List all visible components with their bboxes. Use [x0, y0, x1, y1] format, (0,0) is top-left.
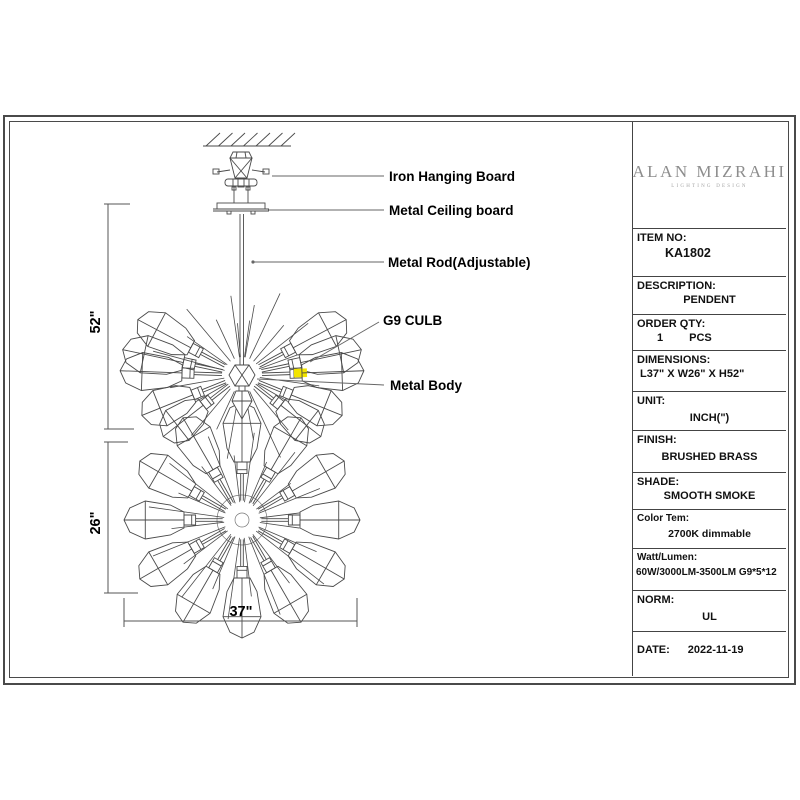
callout-leader-lines — [251, 176, 384, 385]
spec-table: ALAN MIZRAHI LIGHTING DESIGN ITEM NO: KA… — [632, 122, 786, 676]
shade-facet — [274, 427, 307, 446]
shade-socket-line — [283, 388, 287, 397]
hatch-line — [219, 133, 233, 146]
spec-label-dimensions: DIMENSIONS: — [633, 351, 786, 366]
shade-socket — [237, 462, 247, 474]
spike-line — [187, 309, 231, 361]
spec-value-description: PENDENT — [633, 294, 786, 306]
shade-arm — [135, 364, 233, 433]
spike — [245, 433, 255, 502]
shade-arm — [152, 370, 241, 451]
shade-stem — [259, 529, 282, 543]
shade-stem — [258, 531, 281, 545]
shade-stem — [220, 537, 234, 560]
spike — [256, 531, 324, 584]
spike-line — [254, 325, 284, 361]
shade-facet — [163, 405, 203, 436]
shade-stem — [202, 496, 225, 510]
spike-line — [231, 296, 240, 357]
spike — [187, 309, 231, 361]
spec-value-qty-unit: PCS — [689, 332, 712, 344]
shade-facet — [149, 455, 168, 488]
shade-socket-line — [283, 541, 288, 550]
spike-line — [253, 534, 290, 583]
metal-rod-drawing — [240, 214, 244, 365]
spec-value-unit: INCH(") — [633, 412, 786, 424]
spec-label-shade: SHADE: — [633, 473, 786, 488]
spec-label-description: DESCRIPTION: — [633, 277, 786, 292]
spec-row-date: DATE: 2022-11-19 — [633, 631, 786, 676]
plan-hub-circle — [235, 513, 249, 527]
spec-value-qty-number: 1 — [657, 332, 663, 344]
dimension-width: 37" — [229, 604, 252, 620]
spec-label-color-temp: Color Tem: — [633, 510, 786, 524]
hatch-line — [231, 133, 245, 146]
spike — [245, 321, 250, 358]
shade-socket — [288, 515, 300, 525]
shade-facet — [149, 552, 168, 585]
callout-g9-bulb: G9 CULB — [383, 313, 443, 328]
spike-line — [256, 483, 290, 509]
shade-socket — [237, 566, 247, 578]
shade-facet — [274, 594, 307, 613]
shade-stem — [218, 480, 232, 503]
spec-label-unit: UNIT: — [633, 392, 786, 407]
spec-row-color-temp: Color Tem: 2700K dimmable — [633, 509, 786, 548]
metal-ceiling-board-drawing — [213, 203, 269, 214]
hatch-line — [256, 133, 270, 146]
shade-stem — [202, 352, 226, 365]
spike-line — [245, 321, 250, 358]
hatch-line — [244, 133, 258, 146]
metal-body-hub-drawing — [229, 365, 255, 419]
spike — [149, 507, 224, 518]
hatch-line — [281, 133, 295, 146]
spec-label-item-no: ITEM NO: — [633, 229, 786, 244]
shade-facet — [177, 594, 210, 613]
spike — [254, 389, 289, 430]
spec-row-unit: UNIT: INCH(") — [633, 391, 786, 430]
shade-stem — [195, 366, 222, 372]
spec-value-watt-lumen: 60W/3000LM-3500LM G9*5*12 — [633, 567, 786, 578]
shade-socket — [261, 558, 275, 573]
spec-value-norm: UL — [633, 611, 786, 623]
callout-metal-rod: Metal Rod(Adjustable) — [388, 255, 531, 270]
ceiling-hatch — [203, 133, 295, 146]
spike — [245, 305, 254, 357]
dimension-depth: 26" — [88, 511, 104, 534]
callout-iron-hanging-board: Iron Hanging Board — [389, 169, 515, 184]
spec-value-finish: BRUSHED BRASS — [633, 451, 786, 463]
shade-socket-line — [213, 561, 222, 566]
shade-stem — [195, 364, 222, 370]
callout-metal-body: Metal Body — [390, 378, 463, 393]
shade-stem — [253, 480, 267, 503]
spec-value-dimensions: L37" X W26" X H52" — [633, 368, 786, 380]
shade-socket-line — [196, 541, 201, 550]
spec-value-date: 2022-11-19 — [688, 644, 744, 656]
brand-logo: ALAN MIZRAHI LIGHTING DESIGN — [633, 122, 786, 228]
spec-row-dimensions: DIMENSIONS: L37" X W26" X H52" — [633, 350, 786, 391]
spec-label-norm: NORM: — [633, 591, 786, 606]
shade-stem — [202, 531, 225, 545]
spec-label-watt-lumen: Watt/Lumen: — [633, 549, 786, 563]
shade-socket-line — [196, 491, 201, 500]
shade-stem — [210, 384, 228, 398]
shade-socket-line — [283, 491, 288, 500]
spike — [244, 538, 251, 597]
spec-label-order-qty: ORDER QTY: — [633, 315, 786, 330]
spike-line — [153, 527, 225, 556]
spike-line — [216, 320, 234, 359]
spec-row-finish: FINISH: BRUSHED BRASS — [633, 430, 786, 472]
shade-socket-line — [263, 561, 272, 566]
spec-label-date: DATE: — [637, 644, 670, 656]
shade-stem — [194, 375, 222, 376]
shade-socket — [184, 515, 196, 525]
shade-socket-line — [213, 474, 222, 479]
spike-line — [149, 507, 224, 518]
spike — [172, 522, 225, 528]
callout-metal-ceiling-board: Metal Ceiling board — [389, 203, 514, 218]
spike — [153, 527, 225, 556]
shade-socket-line — [292, 359, 294, 369]
shade-facet — [302, 371, 364, 373]
hatch-line — [206, 133, 220, 146]
spike — [256, 483, 290, 509]
spike-line — [245, 433, 255, 502]
shade-socket — [270, 395, 284, 409]
shade-facet — [317, 391, 331, 426]
shade-facet — [177, 427, 210, 446]
brand-name: ALAN MIZRAHI — [632, 162, 786, 182]
dimension-height: 52" — [88, 310, 104, 333]
spike-line — [256, 531, 324, 584]
spike-line — [254, 389, 289, 430]
spec-row-shade: SHADE: SMOOTH SMOKE — [633, 472, 786, 509]
spike — [254, 325, 284, 361]
spike — [253, 534, 290, 583]
shade-facet — [153, 391, 167, 426]
brand-tagline: LIGHTING DESIGN — [671, 184, 747, 189]
shade-socket-line — [284, 347, 289, 356]
shade-stem — [262, 366, 289, 372]
shade-stem — [251, 479, 265, 502]
shade-arm — [261, 501, 360, 539]
spec-row-item-no: ITEM NO: KA1802 — [633, 228, 786, 276]
shade-socket — [200, 395, 214, 409]
shade-stem — [201, 498, 224, 512]
shade-stem — [256, 384, 274, 398]
spike-line — [244, 538, 251, 597]
chandelier-plan-view — [124, 402, 360, 638]
spec-row-norm: NORM: UL — [633, 590, 786, 631]
iron-hanging-board-drawing — [213, 152, 269, 203]
spike-line — [172, 522, 225, 528]
shade-stem — [258, 352, 282, 365]
shade-facet — [120, 371, 182, 373]
spike — [216, 320, 234, 359]
spec-label-finish: FINISH: — [633, 431, 786, 446]
shade-stem — [262, 372, 290, 373]
shade-stem — [258, 496, 281, 510]
spike — [249, 462, 267, 503]
spike-line — [245, 305, 254, 357]
shade-facet — [316, 455, 335, 488]
shade-stem — [218, 536, 232, 559]
shade-socket-line — [263, 474, 272, 479]
shade-arm — [124, 501, 223, 539]
shade-stem — [262, 375, 290, 376]
shade-facet — [281, 405, 321, 436]
shade-arm — [223, 539, 261, 638]
spec-value-color-temp: 2700K dimmable — [633, 528, 786, 540]
spec-row-order-qty: ORDER QTY: 1 PCS — [633, 314, 786, 350]
spec-row-watt-lumen: Watt/Lumen: 60W/3000LM-3500LM G9*5*12 — [633, 548, 786, 590]
shade-socket-line — [195, 347, 200, 356]
spec-row-description: DESCRIPTION: PENDENT — [633, 276, 786, 314]
shade-stem — [253, 536, 267, 559]
shade-facet — [316, 552, 335, 585]
plan-hub-circle — [217, 495, 267, 545]
spike — [231, 296, 240, 357]
shade-stem — [194, 372, 222, 373]
spec-value-shade: SMOOTH SMOKE — [633, 490, 786, 502]
spike-line — [249, 462, 267, 503]
spec-value-item-no: KA1802 — [633, 246, 786, 260]
shade-socket-line — [197, 388, 201, 397]
hatch-line — [269, 133, 283, 146]
